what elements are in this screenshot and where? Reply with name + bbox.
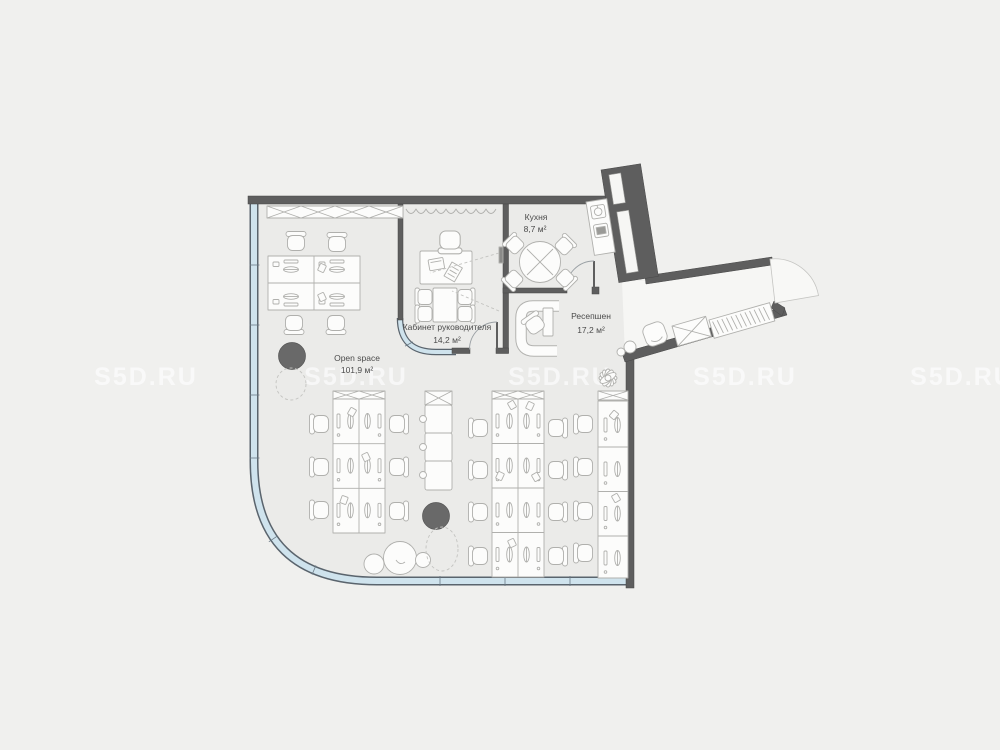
- room-label-reception: Ресепшен: [571, 311, 611, 321]
- room-label-open-space: Open space: [334, 353, 380, 363]
- chair-icon: [469, 460, 488, 480]
- chair-icon: [549, 502, 568, 522]
- watermark: S5D.RU: [693, 363, 797, 391]
- side-table-icon: [624, 341, 636, 353]
- chair-icon: [310, 457, 329, 477]
- room-area-open-space: 101,9 м²: [341, 365, 373, 375]
- watermark: S5D.RU: [508, 363, 612, 391]
- chair-icon: [469, 418, 488, 438]
- chair-icon: [326, 316, 346, 335]
- chair-icon: [458, 305, 475, 323]
- decor-stone-icon: [617, 348, 625, 356]
- floor-plan-page: S5D.RU S5D.RU S5D.RU S5D.RU S5D.RU: [0, 0, 1000, 750]
- chair-icon: [438, 231, 462, 254]
- storage-cabinet-x-icon: [267, 206, 403, 218]
- watermarks: S5D.RU S5D.RU S5D.RU S5D.RU S5D.RU: [94, 363, 1000, 391]
- meeting-table: [433, 288, 457, 322]
- room-area-director-office: 14,2 м²: [433, 335, 461, 345]
- sink-icon: [590, 204, 606, 219]
- watermark: S5D.RU: [910, 363, 1000, 391]
- chair-icon: [327, 233, 347, 252]
- chair-icon: [390, 501, 409, 521]
- chair-icon: [415, 305, 432, 323]
- chair-icon: [310, 414, 329, 434]
- watermark: S5D.RU: [94, 363, 198, 391]
- column-icon: [423, 503, 450, 530]
- office-bottom-wall: [452, 348, 470, 354]
- stove-icon: [593, 223, 609, 238]
- chair-icon: [284, 316, 304, 335]
- office-desk: [420, 251, 472, 284]
- room-label-director-office: Кабинет руководителя: [403, 322, 492, 332]
- chair-icon: [549, 460, 568, 480]
- chair-icon: [310, 500, 329, 520]
- room-label-kitchen: Кухня: [525, 212, 548, 222]
- reception-counter-return: [543, 308, 553, 336]
- chair-icon: [286, 232, 306, 251]
- office-left-wall: [398, 204, 403, 320]
- wall-tv-icon: [499, 247, 503, 263]
- chair-icon: [390, 414, 409, 434]
- chair-icon: [469, 546, 488, 566]
- chair-icon: [574, 414, 593, 434]
- chair-icon: [574, 501, 593, 521]
- chair-icon: [549, 418, 568, 438]
- entrance-door-swing: [770, 259, 819, 303]
- chair-icon: [574, 457, 593, 477]
- room-area-reception: 17,2 м²: [577, 325, 605, 335]
- chair-icon: [549, 546, 568, 566]
- chair-icon: [415, 288, 432, 306]
- laptop-icon: [428, 257, 445, 270]
- top-wall: [248, 196, 612, 204]
- chair-icon: [574, 543, 593, 563]
- room-area-kitchen: 8,7 м²: [524, 224, 547, 234]
- floor-plan: S5D.RU S5D.RU S5D.RU S5D.RU S5D.RU: [0, 0, 1000, 750]
- chair-icon: [390, 457, 409, 477]
- column-icon: [279, 343, 306, 370]
- chair-icon: [469, 502, 488, 522]
